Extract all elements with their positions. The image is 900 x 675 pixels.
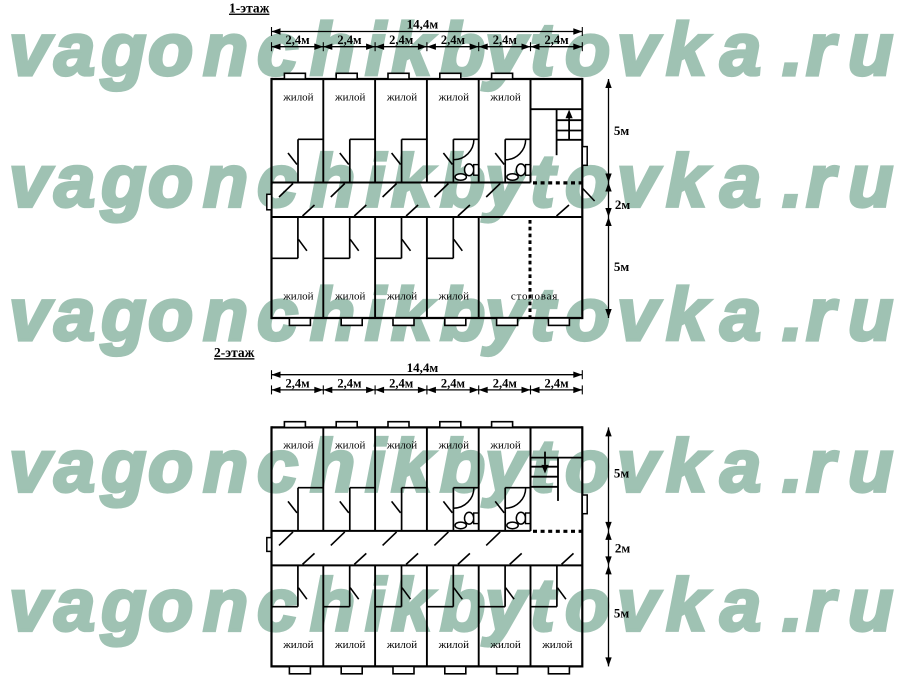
svg-text:vagonchikbytovka.ru: vagonchikbytovka.ru — [9, 563, 893, 646]
svg-text:жилой: жилой — [282, 440, 313, 452]
svg-text:жилой: жилой — [334, 91, 365, 103]
svg-text:жилой: жилой — [386, 639, 417, 651]
svg-text:2,4м: 2,4м — [545, 33, 570, 47]
svg-text:жилой: жилой — [282, 290, 313, 302]
svg-text:жилой: жилой — [334, 290, 365, 302]
svg-text:жилой: жилой — [282, 91, 313, 103]
svg-text:жилой: жилой — [334, 440, 365, 452]
svg-text:5м: 5м — [614, 605, 630, 620]
svg-text:5м: 5м — [614, 123, 630, 138]
svg-text:2,4м: 2,4м — [337, 376, 362, 390]
svg-text:2,4м: 2,4м — [545, 376, 570, 390]
svg-text:2,4м: 2,4м — [337, 33, 362, 47]
svg-text:жилой: жилой — [282, 639, 313, 651]
svg-text:жилой: жилой — [489, 440, 520, 452]
svg-text:жилой: жилой — [541, 639, 572, 651]
svg-text:жилой: жилой — [438, 91, 469, 103]
svg-text:жилой: жилой — [489, 91, 520, 103]
svg-text:2,4м: 2,4м — [493, 376, 518, 390]
svg-text:14,4м: 14,4м — [407, 17, 439, 32]
svg-text:5м: 5м — [614, 259, 630, 274]
svg-text:жилой: жилой — [489, 639, 520, 651]
svg-text:жилой: жилой — [438, 639, 469, 651]
svg-text:2,4м: 2,4м — [286, 33, 311, 47]
svg-text:vagonchikbytovka.ru: vagonchikbytovka.ru — [9, 273, 893, 356]
svg-text:2,4м: 2,4м — [441, 376, 466, 390]
svg-text:2,4м: 2,4м — [493, 33, 518, 47]
svg-text:жилой: жилой — [386, 290, 417, 302]
svg-text:жилой: жилой — [386, 91, 417, 103]
svg-text:столовая: столовая — [511, 290, 558, 302]
svg-text:vagonchikbytovka.ru: vagonchikbytovka.ru — [9, 425, 893, 508]
svg-text:2м: 2м — [615, 197, 631, 212]
svg-text:2,4м: 2,4м — [389, 33, 414, 47]
svg-text:жилой: жилой — [438, 290, 469, 302]
svg-text:2-этаж: 2-этаж — [214, 345, 255, 360]
svg-text:2,4м: 2,4м — [389, 376, 414, 390]
svg-text:жилой: жилой — [386, 440, 417, 452]
svg-text:14,4м: 14,4м — [407, 360, 439, 375]
svg-text:жилой: жилой — [334, 639, 365, 651]
svg-text:1-этаж: 1-этаж — [229, 1, 270, 16]
svg-text:5м: 5м — [614, 466, 630, 481]
svg-text:2,4м: 2,4м — [286, 376, 311, 390]
svg-text:vagonchikbytovka.ru: vagonchikbytovka.ru — [9, 140, 893, 223]
svg-text:2,4м: 2,4м — [441, 33, 466, 47]
svg-text:жилой: жилой — [438, 440, 469, 452]
svg-text:2м: 2м — [615, 541, 631, 556]
